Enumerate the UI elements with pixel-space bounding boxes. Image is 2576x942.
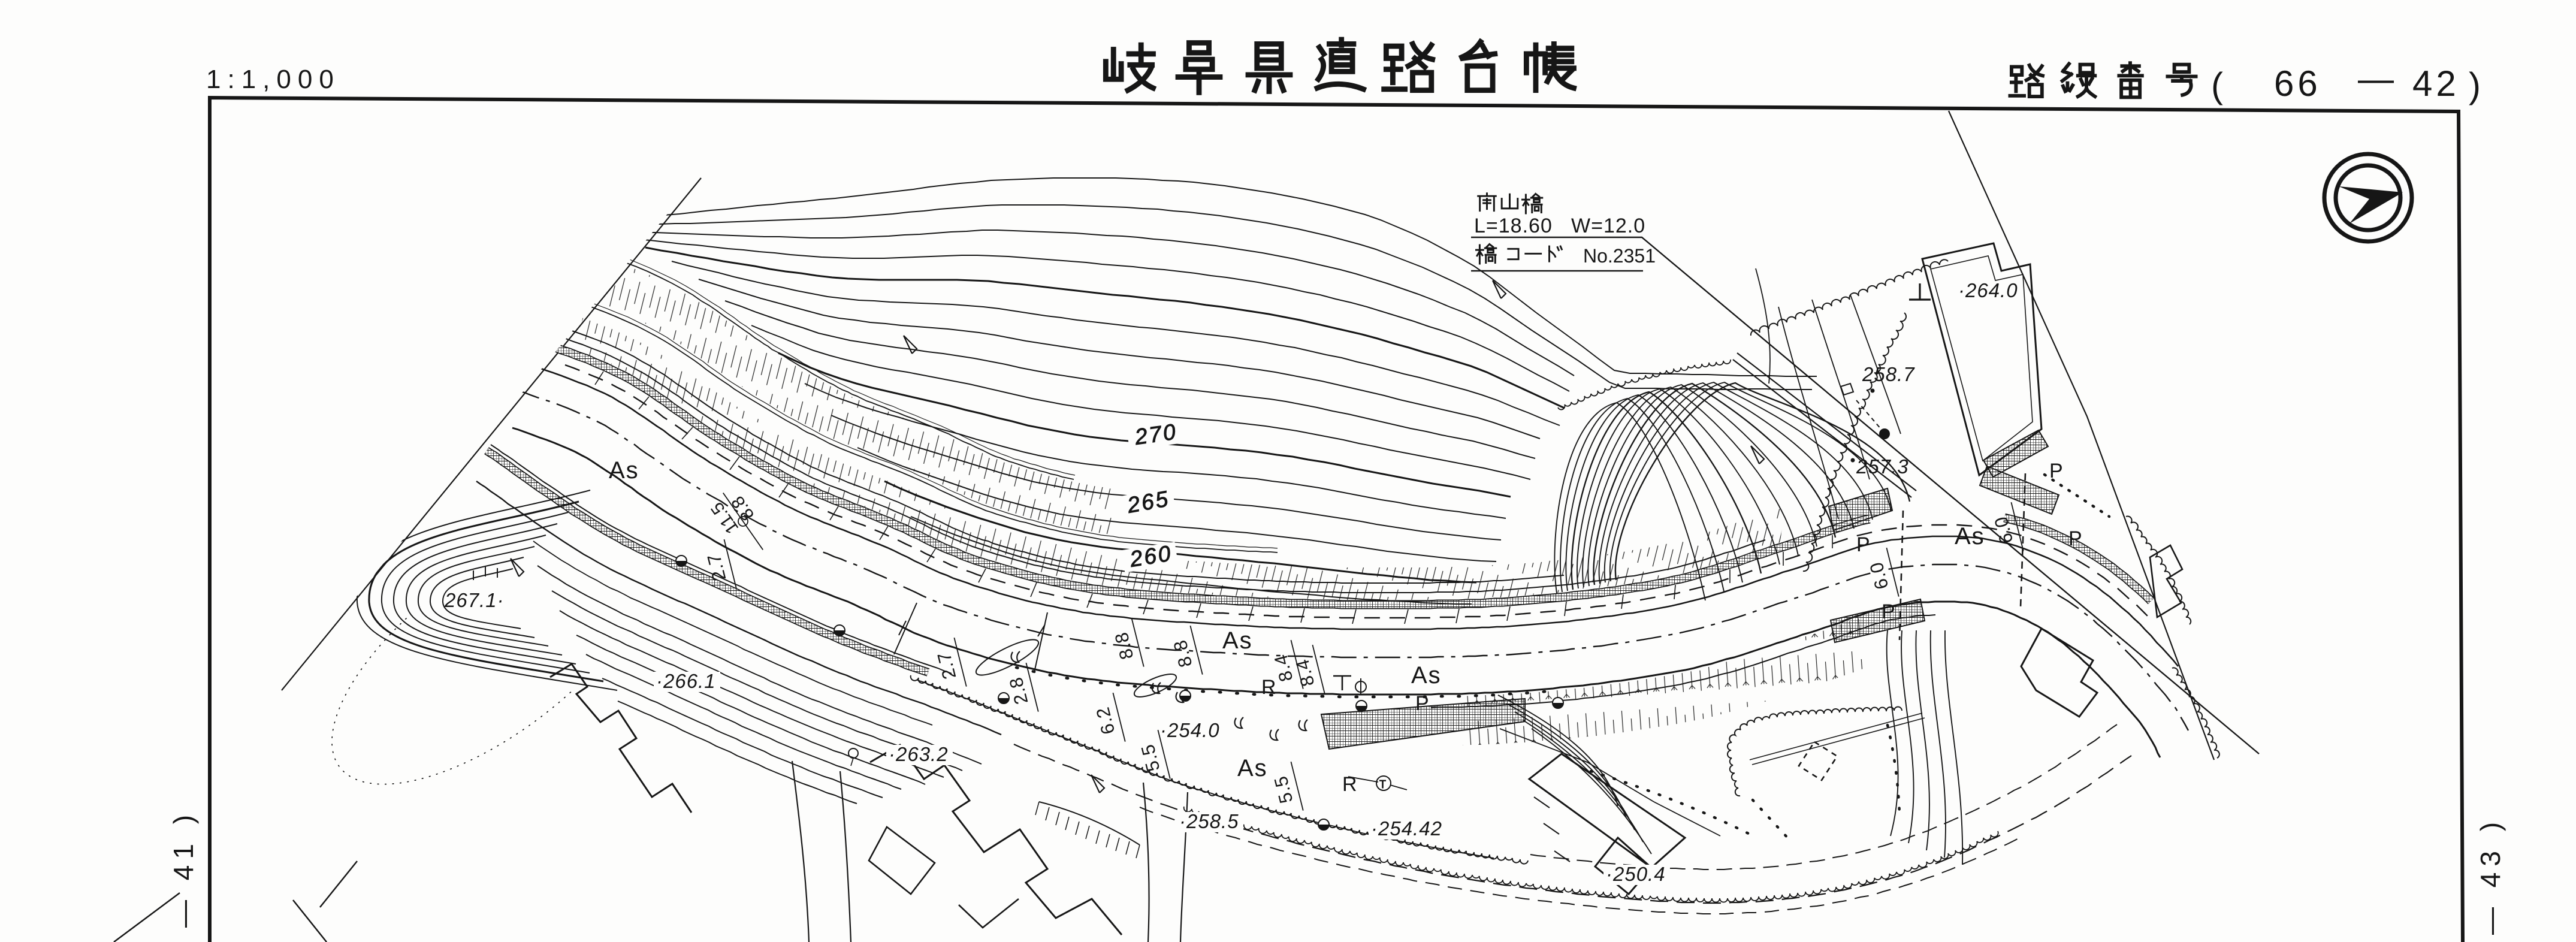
svg-text:258.7: 258.7 — [1862, 363, 1915, 385]
svg-text:·254.42: ·254.42 — [1371, 817, 1442, 840]
svg-text:42: 42 — [2412, 64, 2460, 104]
svg-text:P: P — [1856, 533, 1870, 556]
svg-text:W=12.0: W=12.0 — [1571, 215, 1645, 237]
svg-text:·258.5: ·258.5 — [1179, 810, 1239, 832]
svg-text:P: P — [1882, 600, 1895, 623]
svg-text:66: 66 — [2274, 64, 2321, 104]
svg-text:·266.1: ·266.1 — [656, 670, 716, 692]
svg-text:·263.2: ·263.2 — [889, 743, 949, 765]
svg-text:(: ( — [2211, 65, 2224, 105]
svg-text:As: As — [1222, 627, 1253, 654]
svg-text:P: P — [1415, 692, 1429, 715]
svg-text:·250.4: ·250.4 — [1606, 863, 1666, 885]
svg-text:As: As — [1411, 662, 1442, 689]
svg-text:·254.0: ·254.0 — [1160, 719, 1220, 741]
svg-text:1:1,000: 1:1,000 — [206, 65, 340, 94]
svg-text:P: P — [2049, 460, 2063, 482]
svg-text:As: As — [1955, 523, 1985, 549]
svg-text:P: P — [2068, 527, 2082, 550]
svg-text:As: As — [609, 457, 639, 484]
svg-text:T: T — [1379, 778, 1386, 790]
svg-text:257.3: 257.3 — [1856, 455, 1909, 478]
svg-text:R: R — [1342, 773, 1358, 796]
svg-text:): ) — [2469, 65, 2481, 105]
svg-text:— 41 ): — 41 ) — [168, 809, 199, 928]
svg-text:— 43 ): — 43 ) — [2475, 816, 2506, 935]
svg-text:—: — — [2358, 59, 2394, 99]
svg-text:267.1·: 267.1· — [444, 589, 505, 611]
svg-text:As: As — [1237, 755, 1268, 781]
svg-text:No.2351: No.2351 — [1583, 245, 1656, 267]
svg-text:L=18.60: L=18.60 — [1474, 215, 1553, 237]
svg-text:·264.0: ·264.0 — [1958, 279, 2018, 301]
